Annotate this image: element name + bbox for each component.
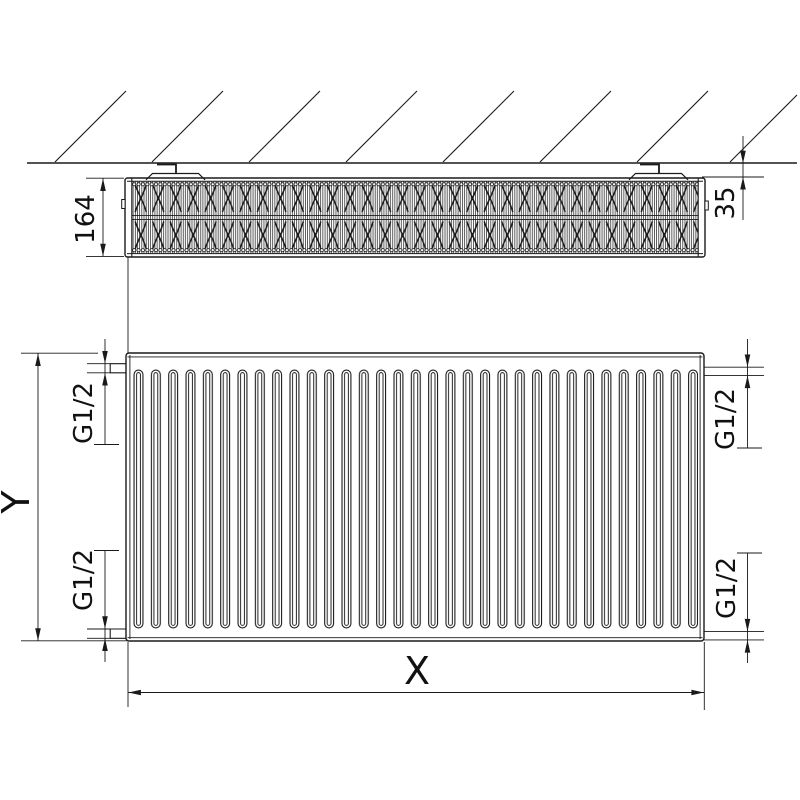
depth-dimension-label: 164: [73, 194, 99, 244]
connection-label-bottom-right: G1/2: [714, 557, 740, 619]
wall-gap-dimension-label: 35: [713, 186, 739, 219]
height-dimension-label: Y: [0, 490, 35, 513]
connection-label-top-left: G1/2: [71, 382, 97, 444]
radiator-top-view: [122, 178, 709, 257]
radiator-front-view: [126, 353, 704, 641]
width-dimension-label: X: [404, 652, 430, 690]
connection-label-bottom-left: G1/2: [71, 549, 97, 611]
radiator-dimension-drawing: 164 35 G1/2 G1/2 G1/2 G1/2 Y X: [0, 0, 800, 800]
wall-hatching: [27, 91, 797, 163]
pipe-stubs-left: [110, 364, 126, 639]
connection-label-top-right: G1/2: [713, 388, 739, 450]
technical-drawing-canvas: [0, 0, 800, 800]
